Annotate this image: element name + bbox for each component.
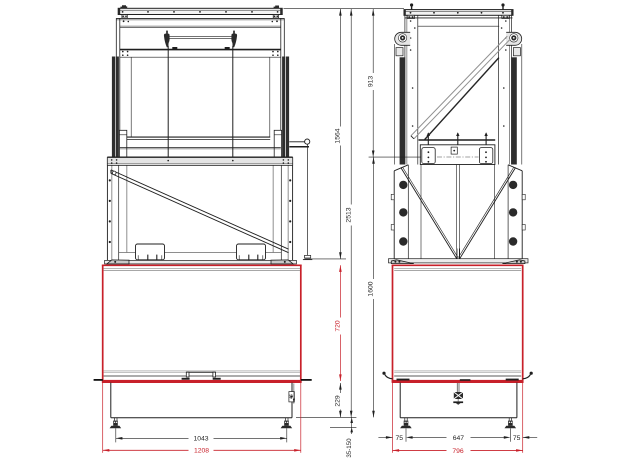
- svg-text:796: 796: [452, 448, 464, 455]
- svg-text:1600: 1600: [368, 281, 375, 296]
- svg-text:1208: 1208: [194, 448, 209, 455]
- svg-text:35-150: 35-150: [346, 438, 353, 458]
- svg-text:1043: 1043: [193, 436, 208, 443]
- svg-text:229: 229: [335, 395, 342, 407]
- svg-text:647: 647: [453, 435, 465, 442]
- svg-text:720: 720: [335, 320, 342, 332]
- svg-text:913: 913: [367, 76, 374, 88]
- svg-text:45: 45: [288, 394, 293, 400]
- svg-text:75: 75: [396, 435, 404, 442]
- svg-text:1564: 1564: [335, 128, 342, 143]
- svg-text:2513: 2513: [345, 207, 352, 222]
- svg-text:75: 75: [513, 435, 521, 442]
